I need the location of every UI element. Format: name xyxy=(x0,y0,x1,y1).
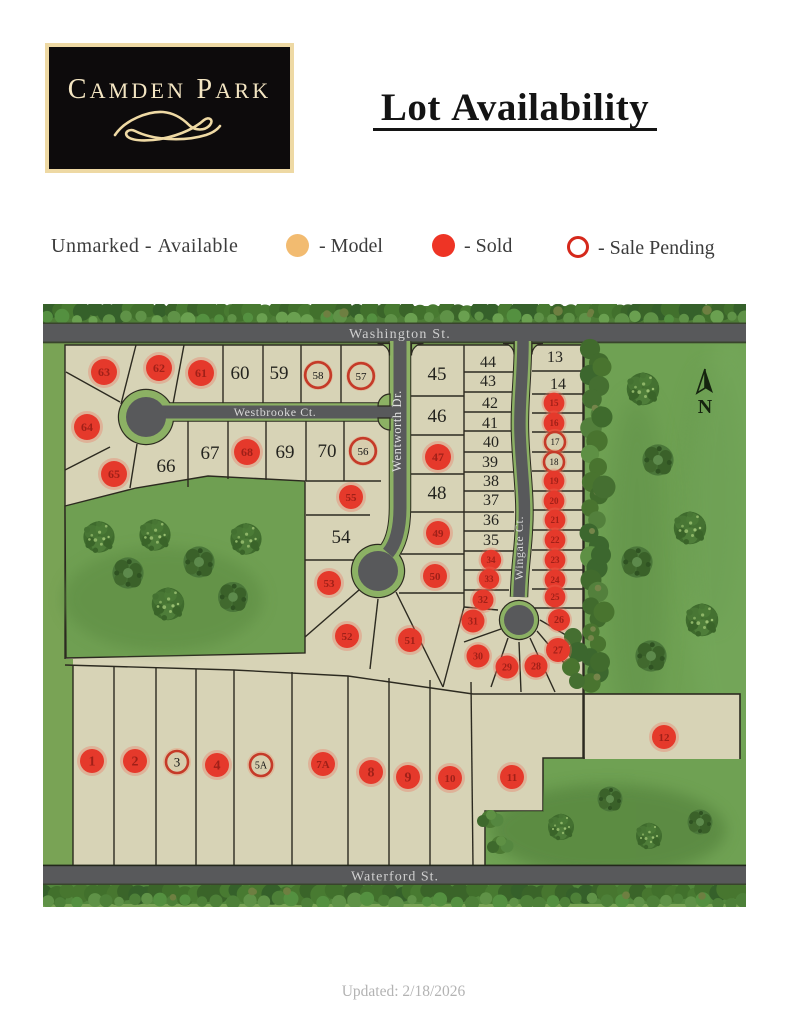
svg-text:65: 65 xyxy=(108,467,120,481)
svg-text:34: 34 xyxy=(487,555,497,565)
svg-text:41: 41 xyxy=(482,415,498,432)
svg-text:14: 14 xyxy=(550,376,566,393)
svg-text:33: 33 xyxy=(485,574,495,584)
svg-text:7A: 7A xyxy=(316,759,330,771)
svg-text:28: 28 xyxy=(531,662,541,673)
svg-text:1: 1 xyxy=(89,755,96,770)
svg-text:68: 68 xyxy=(241,445,253,459)
svg-text:54: 54 xyxy=(332,527,352,548)
svg-text:18: 18 xyxy=(550,457,560,467)
svg-text:61: 61 xyxy=(195,366,207,380)
svg-text:63: 63 xyxy=(98,365,110,379)
svg-text:52: 52 xyxy=(342,631,354,643)
svg-text:Wingate Ct.: Wingate Ct. xyxy=(512,516,526,580)
svg-text:19: 19 xyxy=(550,476,560,486)
svg-text:43: 43 xyxy=(480,373,496,390)
svg-text:12: 12 xyxy=(659,732,671,744)
svg-text:59: 59 xyxy=(270,363,289,384)
svg-text:50: 50 xyxy=(430,571,442,583)
svg-text:25: 25 xyxy=(551,592,561,602)
svg-text:60: 60 xyxy=(231,363,250,384)
svg-text:48: 48 xyxy=(428,483,447,504)
svg-text:Wentworth Dr.: Wentworth Dr. xyxy=(390,390,404,472)
svg-text:13: 13 xyxy=(547,349,563,366)
svg-text:N: N xyxy=(698,396,713,418)
svg-text:35: 35 xyxy=(483,532,499,549)
svg-text:53: 53 xyxy=(324,578,336,590)
svg-text:42: 42 xyxy=(482,395,498,412)
svg-text:Westbrooke Ct.: Westbrooke Ct. xyxy=(234,405,317,419)
svg-text:4: 4 xyxy=(214,759,221,774)
svg-text:37: 37 xyxy=(483,492,499,509)
svg-text:64: 64 xyxy=(81,420,93,434)
svg-text:56: 56 xyxy=(358,446,370,458)
svg-text:2: 2 xyxy=(132,755,139,770)
svg-text:69: 69 xyxy=(276,442,295,463)
svg-text:31: 31 xyxy=(468,617,478,628)
svg-text:16: 16 xyxy=(550,418,560,428)
svg-text:70: 70 xyxy=(318,441,337,462)
svg-text:38: 38 xyxy=(483,473,499,490)
svg-text:27: 27 xyxy=(553,646,563,657)
svg-text:8: 8 xyxy=(368,766,375,781)
svg-text:29: 29 xyxy=(502,663,512,674)
svg-text:23: 23 xyxy=(551,555,561,565)
svg-text:20: 20 xyxy=(550,496,560,506)
svg-text:Washington St.: Washington St. xyxy=(349,327,451,342)
svg-text:46: 46 xyxy=(428,406,447,427)
svg-text:57: 57 xyxy=(356,371,368,383)
svg-text:3: 3 xyxy=(174,754,181,769)
svg-text:Waterford St.: Waterford St. xyxy=(351,870,439,885)
svg-text:22: 22 xyxy=(551,535,561,545)
svg-text:26: 26 xyxy=(554,615,564,626)
svg-text:55: 55 xyxy=(346,492,358,504)
svg-text:49: 49 xyxy=(433,528,445,540)
svg-text:32: 32 xyxy=(478,595,488,606)
svg-text:21: 21 xyxy=(551,515,561,525)
svg-text:15: 15 xyxy=(550,398,560,408)
svg-text:9: 9 xyxy=(405,771,412,786)
svg-text:62: 62 xyxy=(153,361,165,375)
svg-text:58: 58 xyxy=(313,370,325,382)
svg-text:47: 47 xyxy=(432,450,444,464)
svg-text:51: 51 xyxy=(405,635,416,647)
svg-text:5A: 5A xyxy=(255,761,268,772)
svg-text:11: 11 xyxy=(507,772,517,784)
svg-text:67: 67 xyxy=(201,443,220,464)
svg-text:10: 10 xyxy=(445,773,457,785)
svg-text:24: 24 xyxy=(551,575,561,585)
svg-text:39: 39 xyxy=(482,454,498,471)
svg-text:40: 40 xyxy=(483,434,499,451)
svg-text:44: 44 xyxy=(480,354,496,371)
svg-text:30: 30 xyxy=(473,652,483,663)
svg-text:45: 45 xyxy=(428,364,447,385)
svg-text:36: 36 xyxy=(483,512,499,529)
svg-text:66: 66 xyxy=(157,456,176,477)
svg-text:17: 17 xyxy=(551,437,561,447)
